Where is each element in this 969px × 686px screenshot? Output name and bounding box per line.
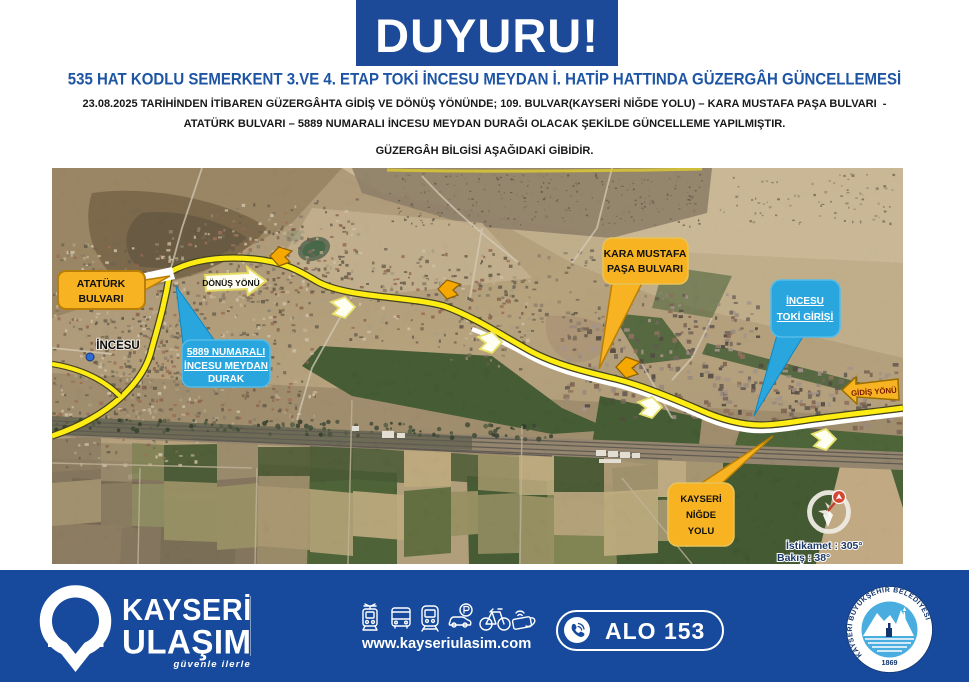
svg-text:Bakış : 38°: Bakış : 38°	[777, 552, 830, 564]
svg-text:KAYSERİ: KAYSERİ	[680, 494, 721, 505]
svg-text:DÖNÜŞ YÖNÜ: DÖNÜŞ YÖNÜ	[202, 278, 259, 288]
svg-text:PAŞA BULVARI: PAŞA BULVARI	[607, 263, 683, 275]
svg-text:YOLU: YOLU	[688, 526, 715, 537]
svg-text:BULVARI: BULVARI	[78, 293, 123, 305]
svg-text:KARA MUSTAFA: KARA MUSTAFA	[604, 248, 687, 260]
svg-text:İNCESU: İNCESU	[96, 339, 139, 352]
svg-text:1869: 1869	[882, 658, 898, 667]
svg-text:ATATÜRK: ATATÜRK	[77, 277, 126, 290]
svg-text:TOKİ GİRİŞİ: TOKİ GİRİŞİ	[777, 310, 834, 323]
svg-text:İNCESU MEYDAN: İNCESU MEYDAN	[184, 359, 268, 372]
svg-text:İstikamet : 305°: İstikamet : 305°	[786, 539, 863, 552]
svg-text:İNCESU: İNCESU	[786, 294, 824, 307]
svg-text:DURAK: DURAK	[208, 374, 245, 385]
svg-text:5889 NUMARALI: 5889 NUMARALI	[187, 347, 266, 358]
svg-text:NİĞDE: NİĞDE	[686, 509, 716, 521]
